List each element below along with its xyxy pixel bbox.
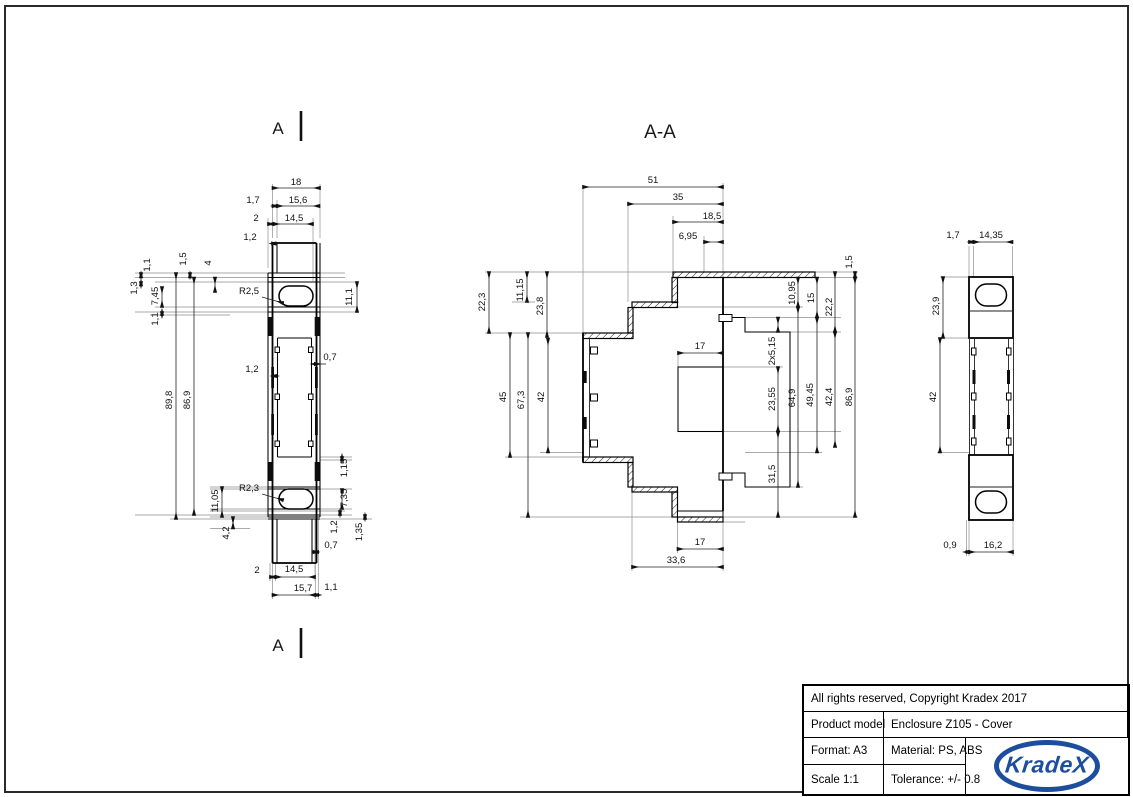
dim-label: 0,7 [324,540,337,551]
product-model-label-cell: Product model [804,712,884,738]
logo-cell: KradeX [966,738,1128,794]
dim-label: 4,2 [221,526,232,539]
dim-label: 86,9 [844,388,855,407]
dim-label: 1,5 [844,255,855,268]
dim-label: 51 [648,175,659,186]
dim-label: 1,3 [129,281,140,294]
side-outline [969,277,1014,520]
dim-label: R2,5 [239,286,259,297]
dim-label: 11,1 [344,288,355,306]
dim-label: 15,7 [294,583,313,594]
front-top-slot [279,286,313,306]
dim-label: 1,2 [245,364,258,375]
dim-label: 42 [928,392,939,403]
section-view: A-A [477,122,858,571]
front-outline [268,243,320,563]
dim-label: 2x5,15 [767,337,778,366]
format-cell: Format: A3 [804,738,884,765]
section-notch [719,473,732,480]
front-clip [315,317,320,336]
section-title: A-A [644,122,676,143]
front-clip [268,317,273,336]
title-block: All rights reserved, Copyright Kradex 20… [802,684,1130,796]
dim-label: 1,2 [243,232,256,243]
drawing-sheet: 181,715,6214,51,21,11,541,37,451,1R2,511… [0,0,1133,797]
dim-label: 23,55 [767,387,778,411]
dim-label: 35 [673,192,684,203]
section-inner-pocket [723,318,790,488]
copyright-text: All rights reserved, Copyright Kradex 20… [811,693,1027,705]
dim-label: 67,3 [516,391,527,410]
dim-label: 11,15 [515,278,526,301]
dim-label: 89,8 [164,391,175,410]
dim-label: 64,9 [787,389,798,408]
dim-label: 42 [536,392,547,403]
dim-label: 14,5 [285,213,304,224]
dim-label: 1,1 [142,258,153,271]
dim-label: 10,95 [787,281,798,305]
dim-label: 7,45 [150,287,161,306]
side-view: 1,714,3523,9420,916,2 [928,230,1014,556]
dim-label: 33,6 [667,555,686,566]
kradex-logo: KradeX [1004,751,1090,778]
dim-label: 6,95 [679,231,698,242]
drawing-page: { "drawing": { "cut_label": "A", "sectio… [0,0,1133,797]
dim-label: 31,5 [767,465,778,484]
dim-label: 42,4 [824,388,835,407]
dim-label: 15 [806,293,817,304]
front-view-dim-labels: 181,715,6214,51,21,11,541,37,451,1R2,511… [129,177,365,594]
side-top-slot [976,284,1007,306]
section-cut-marks: A A [272,111,301,658]
dim-label: 1,7 [246,195,259,206]
dim-label: 2 [254,565,259,576]
front-view: 181,715,6214,51,21,11,541,37,451,1R2,511… [129,111,372,658]
dim-label: 22,3 [477,293,488,312]
dim-label: 86,9 [182,391,193,410]
dim-label: 1,1 [324,582,337,593]
dim-label: 49,45 [805,383,816,407]
dim-label: 16,2 [984,540,1003,551]
dim-label: 1,35 [354,523,365,542]
dim-label: 45 [498,392,509,403]
front-bottom-slot [279,489,313,509]
scale-cell: Scale 1:1 [804,765,884,794]
section-outline [583,272,815,522]
dim-label: 2 [253,213,258,224]
dim-label: 23,9 [931,297,942,316]
dim-label: 17 [695,341,706,352]
front-clip [315,462,320,481]
dim-label: 18,5 [703,211,722,222]
section-notch [719,315,732,322]
section-center-opening [678,367,723,432]
dim-label: 1,15 [339,459,350,478]
dim-label: 11,05 [210,489,221,512]
dim-label: 7,35 [339,489,350,508]
dim-label: 22,2 [824,298,835,317]
dim-label: 14,5 [285,564,304,575]
side-bottom-slot [976,491,1007,513]
dim-label: 1,2 [329,520,340,533]
dim-label: 17 [695,537,706,548]
dim-label: 23,8 [535,297,546,316]
dim-label: 15,6 [289,195,308,206]
dim-label: 1,1 [150,312,161,325]
product-model-value-cell: Enclosure Z105 - Cover [884,712,1128,738]
copyright-row: All rights reserved, Copyright Kradex 20… [804,686,1128,712]
dim-label: 18 [291,177,302,188]
dim-label: 1,7 [946,230,959,241]
dim-label: 1,5 [178,252,189,265]
cut-label-bottom: A [272,636,284,655]
cut-label-top: A [272,119,284,138]
dim-label: 0,7 [323,352,336,363]
front-clip [268,462,273,481]
dim-label: 14,35 [979,230,1003,241]
dim-label: R2,3 [239,483,259,494]
dim-label: 4 [203,260,214,265]
dim-label: 0,9 [943,540,956,551]
material-cell: Material: PS, ABS [884,738,966,765]
tolerance-cell: Tolerance: +/- 0.8 [884,765,966,794]
